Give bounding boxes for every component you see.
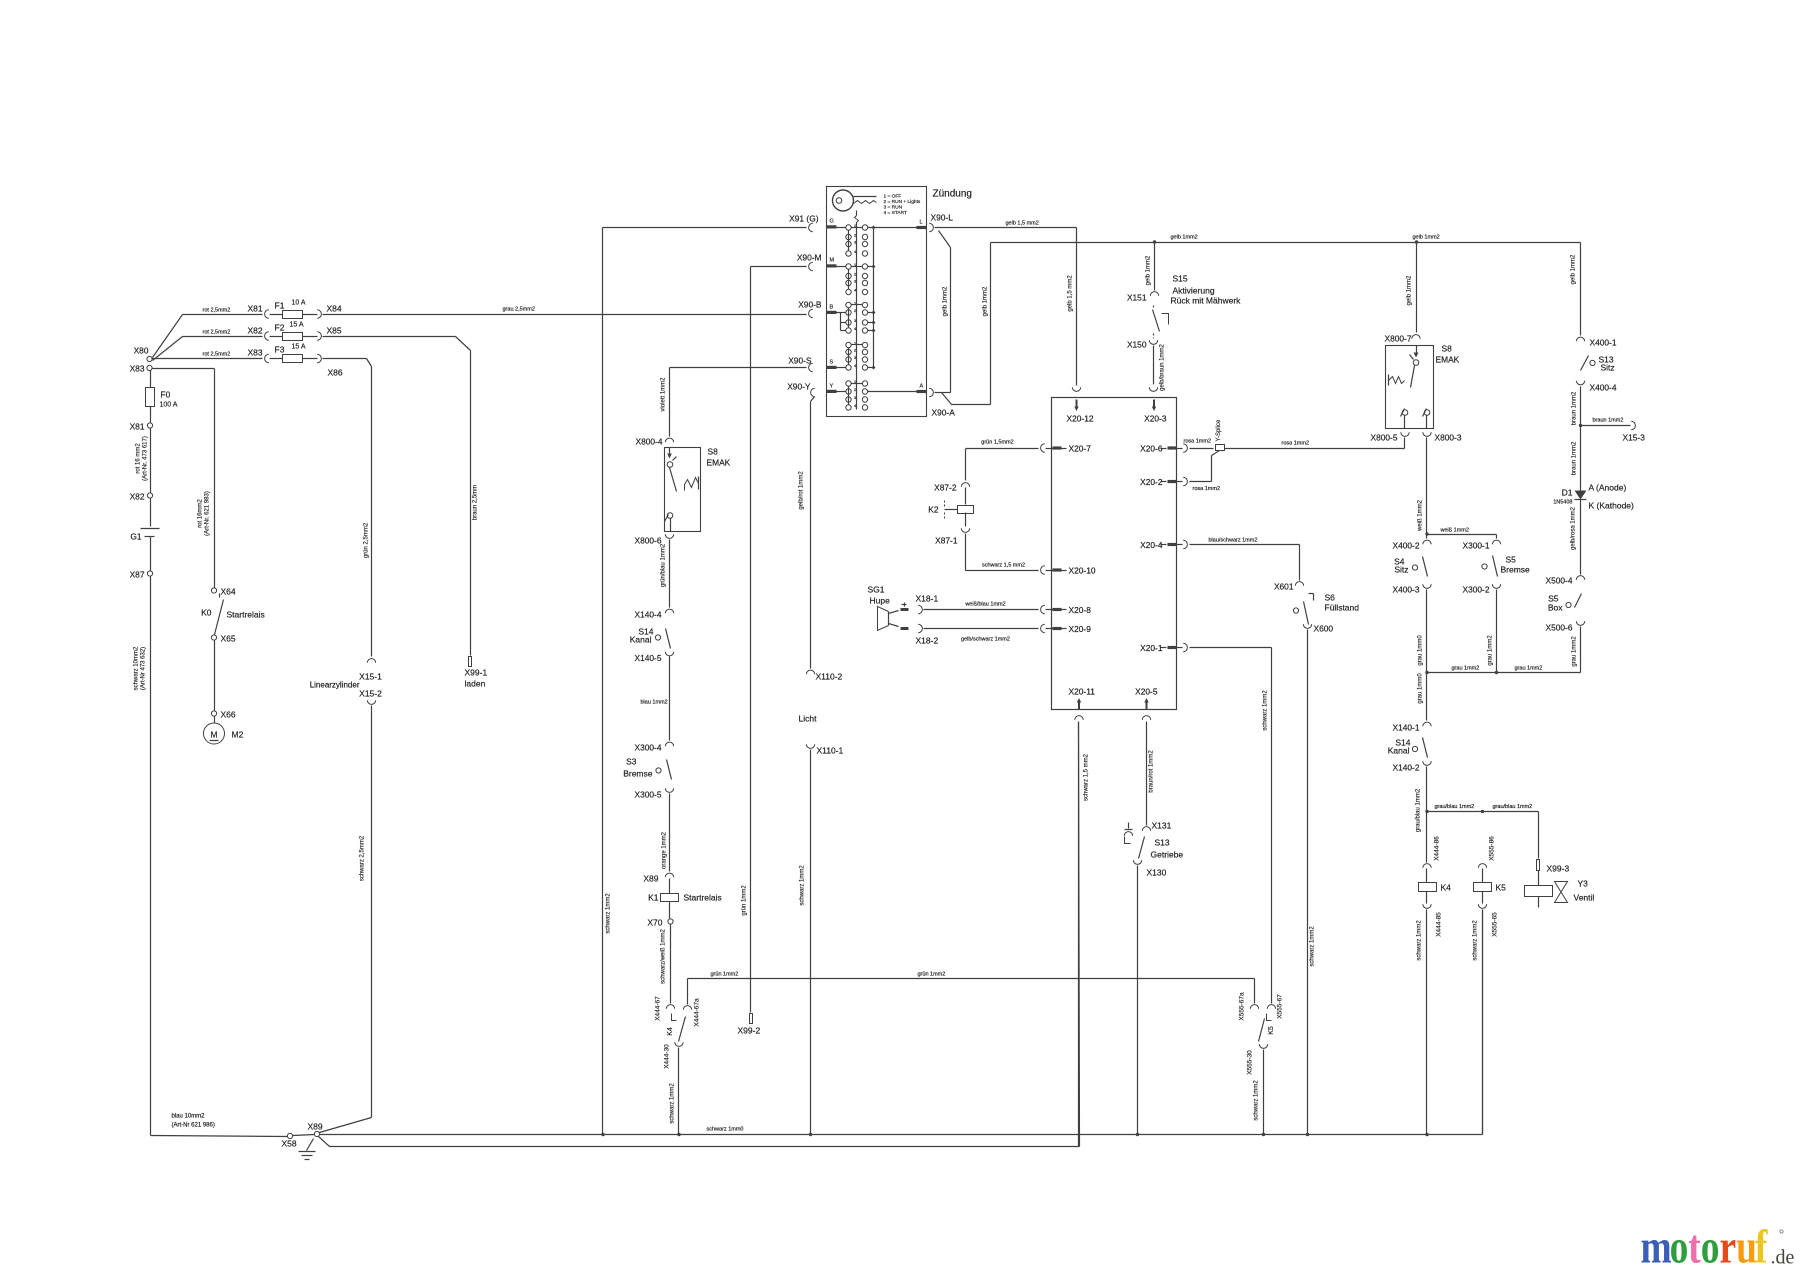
svg-text:K5: K5 — [1496, 883, 1507, 893]
svg-text:K0: K0 — [201, 608, 212, 618]
svg-text:Bremse: Bremse — [1501, 565, 1531, 575]
svg-text:3: 3 — [854, 280, 856, 284]
svg-text:weiß 1mm2: weiß 1mm2 — [1418, 499, 1424, 532]
svg-text:rot 2,5mm2: rot 2,5mm2 — [203, 308, 231, 314]
svg-text:S15: S15 — [1173, 274, 1188, 284]
svg-text:Ventil: Ventil — [1574, 893, 1595, 903]
svg-text:rosa 1mm2: rosa 1mm2 — [1193, 486, 1221, 492]
svg-text:Box: Box — [1548, 603, 1563, 613]
svg-text:X91 (G): X91 (G) — [789, 214, 819, 224]
svg-text:X81: X81 — [248, 304, 263, 314]
svg-text:SG1: SG1 — [868, 585, 885, 595]
svg-text:schwarz 1mm2: schwarz 1mm2 — [1254, 1080, 1260, 1121]
svg-text:X99-2: X99-2 — [738, 1026, 761, 1036]
svg-text:rot 16mm2: rot 16mm2 — [198, 499, 204, 528]
svg-text:X15-2: X15-2 — [359, 689, 382, 699]
svg-text:gelb/schwarz 1mm2: gelb/schwarz 1mm2 — [961, 637, 1010, 643]
svg-text:(Art-Nr 621 986): (Art-Nr 621 986) — [172, 1123, 215, 1129]
svg-text:gelb 1mm2: gelb 1mm2 — [1571, 254, 1577, 284]
svg-text:schwarz 1mm2: schwarz 1mm2 — [1417, 920, 1423, 961]
svg-text:L: L — [920, 220, 923, 226]
svg-text:braun/rot 1mm2: braun/rot 1mm2 — [1149, 750, 1155, 793]
svg-text:X87: X87 — [130, 570, 145, 580]
svg-text:X800-4: X800-4 — [635, 437, 662, 447]
svg-text:(Art-Nr. 621 983): (Art-Nr. 621 983) — [205, 491, 211, 536]
svg-text:X90-L: X90-L — [931, 213, 954, 223]
svg-text:X400-3: X400-3 — [1392, 585, 1419, 595]
svg-text:gelb 1mm2: gelb 1mm2 — [1407, 275, 1413, 305]
svg-text:blau 1mm2: blau 1mm2 — [641, 700, 668, 706]
svg-text:gelb/rot 1mm2: gelb/rot 1mm2 — [799, 471, 805, 510]
svg-text:3 = RUN: 3 = RUN — [884, 205, 903, 211]
svg-text:Y3: Y3 — [1578, 879, 1589, 889]
svg-text:15 A: 15 A — [290, 322, 304, 329]
svg-text:X90-B: X90-B — [798, 300, 822, 310]
svg-text:X20-8: X20-8 — [1069, 605, 1092, 615]
svg-text:X400-1: X400-1 — [1590, 338, 1617, 348]
svg-text:X20-7: X20-7 — [1069, 444, 1092, 454]
svg-text:X81: X81 — [130, 422, 145, 432]
svg-text:t: t — [1688, 1221, 1701, 1272]
svg-text:X400-2: X400-2 — [1392, 541, 1419, 551]
svg-text:X18-2: X18-2 — [916, 636, 939, 646]
svg-text:D1: D1 — [1562, 488, 1573, 498]
svg-text:X601: X601 — [1274, 582, 1294, 592]
svg-text:K5: K5 — [1268, 1026, 1275, 1035]
svg-text:gelb/rosa 1mm2: gelb/rosa 1mm2 — [1571, 506, 1577, 550]
svg-text:Aktivierung: Aktivierung — [1173, 286, 1215, 296]
svg-text:F0: F0 — [161, 390, 171, 400]
svg-text:grün 1,5mm2: grün 1,5mm2 — [981, 440, 1013, 446]
svg-text:gelb 1mm2: gelb 1mm2 — [1171, 235, 1198, 241]
svg-text:M: M — [830, 258, 835, 264]
svg-text:G: G — [830, 219, 834, 225]
svg-text:X20-9: X20-9 — [1069, 624, 1092, 634]
svg-text:B: B — [830, 305, 834, 311]
svg-text:K4: K4 — [667, 1027, 674, 1036]
svg-text:X131: X131 — [1152, 821, 1172, 831]
svg-text:2: 2 — [854, 349, 856, 353]
svg-text:schwarz 10mm2: schwarz 10mm2 — [134, 646, 140, 690]
svg-text:X87-2: X87-2 — [934, 483, 957, 493]
svg-text:X20-4: X20-4 — [1140, 540, 1163, 550]
svg-text:(Art-Nr. 473 617): (Art-Nr. 473 617) — [143, 436, 149, 481]
svg-text:4: 4 — [854, 364, 856, 368]
svg-text:grün 1mm2: grün 1mm2 — [711, 972, 739, 978]
svg-text:K2: K2 — [928, 505, 939, 515]
svg-text:X444-67: X444-67 — [655, 996, 662, 1021]
svg-text:X300-1: X300-1 — [1462, 541, 1489, 551]
svg-text:X87-1: X87-1 — [935, 536, 958, 546]
svg-text:4: 4 — [854, 327, 856, 331]
svg-text:X66: X66 — [221, 710, 236, 720]
svg-text:grün 1mm2: grün 1mm2 — [918, 972, 946, 978]
svg-text:gelb 1,5 mm2: gelb 1,5 mm2 — [1068, 275, 1074, 312]
svg-text:X600: X600 — [1314, 624, 1334, 634]
svg-text:X110-2: X110-2 — [816, 672, 843, 682]
svg-text:X90-S: X90-S — [788, 356, 812, 366]
svg-text:M: M — [211, 730, 218, 740]
svg-text:Rück mit Mähwerk: Rück mit Mähwerk — [1171, 296, 1242, 306]
svg-text:X500-4: X500-4 — [1545, 576, 1572, 586]
svg-text:X90-Y: X90-Y — [787, 382, 811, 392]
svg-text:X80: X80 — [134, 346, 149, 356]
svg-text:braun 1mm2: braun 1mm2 — [1593, 418, 1624, 424]
svg-text:X90-A: X90-A — [932, 408, 956, 418]
svg-text:X99-3: X99-3 — [1547, 864, 1570, 874]
svg-text:X800-7: X800-7 — [1384, 334, 1411, 344]
svg-text:m: m — [1641, 1221, 1672, 1272]
svg-text:X15-1: X15-1 — [359, 672, 382, 682]
svg-text:X140-2: X140-2 — [1392, 763, 1419, 773]
svg-text:S13: S13 — [1155, 838, 1170, 848]
svg-text:3: 3 — [854, 396, 856, 400]
svg-text:schwarz 1,5 mm2: schwarz 1,5 mm2 — [982, 563, 1025, 569]
svg-text:gelb 1mm2: gelb 1mm2 — [943, 286, 949, 316]
svg-text:X20-2: X20-2 — [1140, 477, 1163, 487]
svg-text:Sitz: Sitz — [1394, 565, 1408, 575]
svg-text:S8: S8 — [1442, 344, 1453, 354]
svg-text:schwarz 1mm2: schwarz 1mm2 — [1310, 926, 1316, 967]
svg-text:G1: G1 — [130, 532, 142, 542]
svg-text:K1: K1 — [648, 893, 659, 903]
svg-text:X83: X83 — [130, 364, 145, 374]
svg-text:weiß 1mm2: weiß 1mm2 — [1440, 528, 1469, 534]
svg-text:4: 4 — [854, 250, 856, 254]
svg-text:X500-6: X500-6 — [1545, 623, 1572, 633]
svg-text:grau 1mm2: grau 1mm2 — [1572, 636, 1578, 667]
svg-text:rosa 1mm2: rosa 1mm2 — [1184, 439, 1212, 445]
svg-text:2: 2 — [854, 388, 856, 392]
svg-text:X20-12: X20-12 — [1067, 414, 1094, 424]
svg-text:Startrelais: Startrelais — [227, 610, 265, 620]
svg-text:schwarz 1mm0: schwarz 1mm0 — [707, 1127, 744, 1133]
svg-text:f: f — [1755, 1221, 1768, 1272]
svg-text:X82: X82 — [248, 326, 263, 336]
svg-text:schwarz 1mm2: schwarz 1mm2 — [670, 1083, 676, 1124]
svg-text:X89: X89 — [643, 874, 658, 884]
svg-text:Y: Y — [830, 384, 834, 390]
svg-text:Füllstand: Füllstand — [1325, 603, 1360, 613]
svg-text:X300-2: X300-2 — [1462, 585, 1489, 595]
svg-text:X140-5: X140-5 — [634, 653, 661, 663]
svg-text:Kanal: Kanal — [630, 635, 652, 645]
svg-text:Bremse: Bremse — [623, 769, 653, 779]
svg-text:X89: X89 — [308, 1122, 323, 1132]
svg-text:violett 1mm2: violett 1mm2 — [661, 377, 667, 412]
svg-text:blau 10mm2: blau 10mm2 — [172, 1114, 206, 1120]
svg-text:X444-30: X444-30 — [664, 1044, 671, 1069]
svg-text:4 = START: 4 = START — [884, 210, 907, 216]
svg-text:S5: S5 — [1506, 555, 1517, 565]
svg-text:X150: X150 — [1127, 340, 1147, 350]
svg-text:X140-1: X140-1 — [1392, 723, 1419, 733]
svg-text:X20-3: X20-3 — [1144, 414, 1167, 424]
svg-text:rot 2,5mm2: rot 2,5mm2 — [203, 352, 231, 358]
svg-text:Zündung: Zündung — [933, 189, 972, 200]
svg-text:grau/blau 1mm2: grau/blau 1mm2 — [1493, 804, 1533, 810]
svg-text:X800-5: X800-5 — [1370, 433, 1397, 443]
svg-text:X58: X58 — [282, 1139, 297, 1149]
svg-text:gelb 1mm2: gelb 1mm2 — [983, 286, 989, 316]
svg-text:2: 2 — [854, 273, 856, 277]
svg-text:X20-11: X20-11 — [1069, 687, 1096, 697]
svg-text:F2: F2 — [275, 323, 285, 333]
svg-text:schwarz 1mm2: schwarz 1mm2 — [800, 865, 806, 906]
svg-text:rosa 1mm2: rosa 1mm2 — [1282, 441, 1310, 447]
svg-text:F3: F3 — [275, 345, 285, 355]
svg-text:2: 2 — [854, 234, 856, 238]
svg-text:3: 3 — [854, 319, 856, 323]
svg-text:X64: X64 — [221, 587, 236, 597]
svg-text:4: 4 — [854, 289, 856, 293]
svg-text:A: A — [920, 384, 924, 390]
svg-text:(Art-Nr 473 632): (Art-Nr 473 632) — [141, 647, 147, 690]
svg-text:braun 1mm2: braun 1mm2 — [1572, 441, 1578, 475]
svg-text:gelb 1mm2: gelb 1mm2 — [1413, 235, 1440, 241]
svg-text:schwarz 1,5 mm2: schwarz 1,5 mm2 — [1084, 753, 1090, 801]
svg-text:grau 1mm2: grau 1mm2 — [1452, 666, 1480, 672]
svg-text:Hupe: Hupe — [870, 596, 891, 606]
svg-text:4: 4 — [854, 404, 856, 408]
svg-text:X99-1: X99-1 — [465, 668, 488, 678]
svg-text:schwarz/weiß 1mm2: schwarz/weiß 1mm2 — [661, 929, 667, 984]
svg-text:EMAK: EMAK — [1436, 355, 1460, 365]
svg-text:gelb 1,5 mm2: gelb 1,5 mm2 — [1006, 221, 1039, 227]
svg-text:Licht: Licht — [799, 714, 818, 724]
svg-text:X65: X65 — [221, 634, 236, 644]
svg-text:braun 2,5mm: braun 2,5mm — [473, 485, 479, 520]
svg-text:X20-5: X20-5 — [1135, 687, 1158, 697]
svg-text:X300-5: X300-5 — [634, 790, 661, 800]
svg-text:EMAK: EMAK — [707, 458, 731, 468]
svg-text:S: S — [830, 360, 834, 366]
svg-text:braun 1mm2: braun 1mm2 — [1572, 391, 1578, 425]
svg-text:X800-3: X800-3 — [1435, 433, 1462, 443]
svg-text:M2: M2 — [232, 730, 244, 740]
svg-text:rot 16 mm2: rot 16 mm2 — [136, 443, 142, 474]
svg-text:X18-1: X18-1 — [916, 594, 939, 604]
svg-text:Startrelais: Startrelais — [684, 893, 722, 903]
svg-text:3: 3 — [854, 241, 856, 245]
svg-text:F1: F1 — [275, 301, 285, 311]
svg-text:grün/blau 1mm2: grün/blau 1mm2 — [661, 543, 667, 587]
svg-text:S3: S3 — [626, 757, 637, 767]
svg-text:S8: S8 — [708, 447, 719, 457]
svg-text:grün 1mm2: grün 1mm2 — [742, 885, 748, 916]
svg-text:X555-30: X555-30 — [1247, 1050, 1254, 1075]
svg-text:1N5408: 1N5408 — [1553, 500, 1572, 506]
svg-text:r: r — [1720, 1221, 1737, 1272]
svg-text:X130: X130 — [1147, 868, 1167, 878]
svg-text:10 A: 10 A — [292, 300, 306, 307]
svg-text:Kanal: Kanal — [1388, 746, 1410, 756]
svg-text:A (Anode): A (Anode) — [1589, 483, 1627, 493]
svg-text:K4: K4 — [1441, 883, 1452, 893]
svg-text:X555-67a: X555-67a — [1239, 992, 1246, 1021]
svg-text:o: o — [1670, 1221, 1689, 1272]
svg-text:gelb 1mm2: gelb 1mm2 — [1146, 255, 1152, 285]
svg-text:100 A: 100 A — [160, 402, 178, 409]
svg-text:X110-1: X110-1 — [817, 746, 844, 756]
svg-text:grau 2,5mm2: grau 2,5mm2 — [503, 307, 535, 313]
svg-text:X20-10: X20-10 — [1069, 566, 1096, 576]
svg-text:X555-67: X555-67 — [1277, 994, 1284, 1019]
svg-text:X151: X151 — [1127, 293, 1147, 303]
svg-text:Linearzylinder: Linearzylinder — [310, 681, 360, 690]
svg-text:X800-6: X800-6 — [634, 536, 661, 546]
svg-text:grau 1mm2: grau 1mm2 — [1488, 635, 1494, 666]
svg-text:S6: S6 — [1325, 593, 1336, 603]
svg-text:gelb/braun 1mm2: gelb/braun 1mm2 — [1160, 343, 1166, 390]
svg-text:2: 2 — [854, 309, 856, 313]
svg-text:schwarz 1mm2: schwarz 1mm2 — [1473, 920, 1479, 961]
svg-text:grün 2,5mm2: grün 2,5mm2 — [364, 522, 370, 558]
svg-text:X140-4: X140-4 — [634, 610, 661, 620]
svg-text:X400-4: X400-4 — [1590, 383, 1617, 393]
svg-text:X70: X70 — [647, 918, 662, 928]
svg-text:Sitz: Sitz — [1601, 363, 1615, 373]
svg-text:schwarz 1mm2: schwarz 1mm2 — [606, 893, 612, 934]
svg-text:weiß/blau 1mm2: weiß/blau 1mm2 — [964, 602, 1005, 608]
svg-text:Getriebe: Getriebe — [1151, 850, 1184, 860]
svg-text:grau 1mm0: grau 1mm0 — [1418, 635, 1424, 666]
svg-text:X20-1: X20-1 — [1140, 643, 1163, 653]
svg-text:grau/blau 1mm2: grau/blau 1mm2 — [1416, 788, 1422, 832]
svg-text:grau 1mm0: grau 1mm0 — [1418, 673, 1424, 704]
svg-text:Y-Splice: Y-Splice — [1216, 419, 1222, 441]
svg-text:schwarz 1mm2: schwarz 1mm2 — [1263, 690, 1269, 731]
svg-text:o: o — [1701, 1221, 1720, 1272]
svg-text:rot 2,5mm2: rot 2,5mm2 — [203, 330, 231, 336]
svg-text:u: u — [1736, 1221, 1757, 1272]
svg-text:X86: X86 — [328, 368, 343, 378]
svg-text:X90-M: X90-M — [797, 253, 822, 263]
svg-text:X444-85: X444-85 — [1436, 912, 1443, 937]
svg-text:X555-86: X555-86 — [1489, 836, 1496, 861]
svg-text:X85: X85 — [327, 326, 342, 336]
svg-text:grau/blau 1mm2: grau/blau 1mm2 — [1435, 804, 1475, 810]
svg-text:X444-86: X444-86 — [1434, 836, 1441, 861]
svg-text:orange 1mm2: orange 1mm2 — [662, 831, 668, 869]
svg-text:X84: X84 — [327, 304, 342, 314]
svg-text:15 A: 15 A — [292, 344, 306, 351]
svg-text:3: 3 — [854, 356, 856, 360]
svg-text:.de: .de — [1771, 1247, 1795, 1269]
svg-text:schwarz 2,5mm2: schwarz 2,5mm2 — [360, 835, 366, 881]
svg-text:K (Kathode): K (Kathode) — [1589, 501, 1635, 511]
svg-text:1 = OFF: 1 = OFF — [884, 194, 902, 200]
svg-text:X300-4: X300-4 — [634, 743, 661, 753]
svg-text:2 = RUN + Lights: 2 = RUN + Lights — [884, 199, 921, 205]
svg-text:X82: X82 — [130, 492, 145, 502]
svg-text:X444-67a: X444-67a — [694, 998, 701, 1027]
svg-text:blau/schwarz 1mm2: blau/schwarz 1mm2 — [1209, 538, 1258, 544]
svg-text:X83: X83 — [248, 348, 263, 358]
svg-text:grau 1mm2: grau 1mm2 — [1515, 666, 1543, 672]
svg-text:X15-3: X15-3 — [1623, 433, 1646, 443]
svg-text:X20-6: X20-6 — [1140, 444, 1163, 454]
svg-text:X555-65: X555-65 — [1492, 912, 1499, 937]
svg-text:laden: laden — [465, 679, 486, 689]
